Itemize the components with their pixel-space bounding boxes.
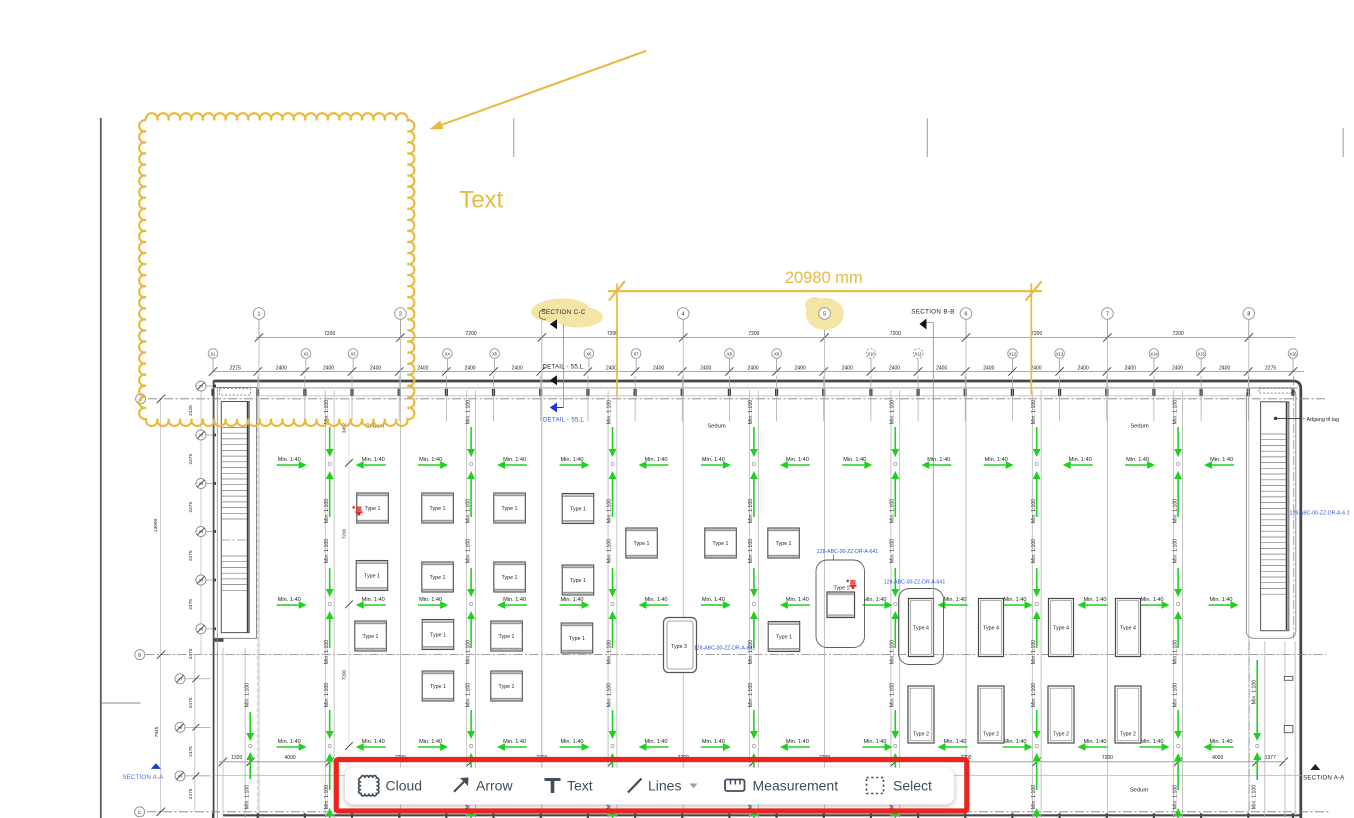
svg-text:2: 2 <box>399 312 402 318</box>
svg-text:Min. 1:40: Min. 1:40 <box>786 739 809 745</box>
svg-text:Min. 1:40: Min. 1:40 <box>863 597 886 603</box>
svg-text:Min. 1:40: Min. 1:40 <box>943 739 966 745</box>
svg-text:7200: 7200 <box>1031 331 1042 337</box>
svg-text:2400: 2400 <box>1078 365 1089 371</box>
svg-text:Min. 1:40: Min. 1:40 <box>278 739 301 745</box>
svg-text:Min. 1:40: Min. 1:40 <box>786 457 809 463</box>
svg-text:2275: 2275 <box>1265 365 1276 371</box>
svg-text:Min. 1:100: Min. 1:100 <box>465 683 471 707</box>
svg-text:Min. 1:40: Min. 1:40 <box>560 597 583 603</box>
svg-text:SECTION A-A: SECTION A-A <box>1303 774 1345 781</box>
svg-text:2400: 2400 <box>653 365 664 371</box>
svg-text:Min. 1:100: Min. 1:100 <box>1172 539 1178 563</box>
svg-text:Type 1: Type 1 <box>499 684 515 690</box>
svg-text:2400: 2400 <box>1125 365 1136 371</box>
svg-text:Min. 1:40: Min. 1:40 <box>362 739 385 745</box>
svg-text:Min. 1:100: Min. 1:100 <box>607 400 613 424</box>
svg-text:Min. 1:40: Min. 1:40 <box>1210 457 1233 463</box>
svg-text:Min. 1:40: Min. 1:40 <box>927 457 950 463</box>
svg-text:SECTION C-C: SECTION C-C <box>541 309 585 316</box>
svg-text:Min. 1:40: Min. 1:40 <box>1003 597 1026 603</box>
svg-text:Min. 1:100: Min. 1:100 <box>607 640 613 664</box>
svg-text:Type 2: Type 2 <box>913 732 929 738</box>
svg-text:2475: 2475 <box>188 550 194 561</box>
svg-text:Measurement: Measurement <box>753 777 839 793</box>
svg-text:Sedum: Sedum <box>707 424 726 430</box>
svg-text:X11: X11 <box>915 351 923 356</box>
svg-text:X16: X16 <box>1289 351 1297 356</box>
svg-text:7: 7 <box>1106 312 1109 318</box>
svg-text:DETAIL - 55.L: DETAIL - 55.L <box>542 364 583 371</box>
svg-text:6: 6 <box>965 312 968 318</box>
svg-text:Min. 1:100: Min. 1:100 <box>1031 683 1037 707</box>
svg-text:2400: 2400 <box>417 365 428 371</box>
svg-text:Min. 1:100: Min. 1:100 <box>244 785 250 809</box>
svg-text:Min. 1:40: Min. 1:40 <box>702 739 725 745</box>
svg-text:DETAIL - 55.L: DETAIL - 55.L <box>543 417 584 424</box>
svg-text:Type 1: Type 1 <box>499 634 515 640</box>
svg-text:X3: X3 <box>351 351 357 356</box>
svg-text:8: 8 <box>1247 312 1250 318</box>
svg-text:7200: 7200 <box>324 331 335 337</box>
svg-text:Min. 1:40: Min. 1:40 <box>1126 457 1149 463</box>
svg-text:Min. 1:40: Min. 1:40 <box>985 457 1008 463</box>
svg-text:Sedum: Sedum <box>1130 788 1149 794</box>
svg-text:7200: 7200 <box>466 331 477 337</box>
svg-text:Min. 1:100: Min. 1:100 <box>324 539 330 563</box>
svg-text:Min. 1:100: Min. 1:100 <box>748 539 754 563</box>
svg-text:Type 4: Type 4 <box>983 626 999 632</box>
svg-text:X4: X4 <box>445 351 451 356</box>
svg-text:Text: Text <box>459 187 503 214</box>
svg-text:Min. 1:40: Min. 1:40 <box>278 597 301 603</box>
svg-text:Type 1: Type 1 <box>834 586 850 592</box>
svg-text:4000: 4000 <box>285 755 296 761</box>
svg-text:Min. 1:100: Min. 1:100 <box>465 400 471 424</box>
svg-text:2400: 2400 <box>512 365 523 371</box>
svg-text:2400: 2400 <box>889 365 900 371</box>
svg-text:Min. 1:100: Min. 1:100 <box>1172 640 1178 664</box>
svg-text:2475: 2475 <box>188 502 194 513</box>
svg-text:Min. 1:100: Min. 1:100 <box>1031 499 1037 523</box>
svg-text:Min. 1:100: Min. 1:100 <box>1031 539 1037 563</box>
svg-text:X8: X8 <box>727 351 733 356</box>
svg-text:Type 4: Type 4 <box>913 626 929 632</box>
svg-text:Type 1: Type 1 <box>502 575 518 581</box>
svg-text:2275: 2275 <box>230 365 241 371</box>
svg-text:Type 1: Type 1 <box>570 507 586 513</box>
svg-text:2400: 2400 <box>842 365 853 371</box>
svg-text:Min. 1:40: Min. 1:40 <box>362 597 385 603</box>
svg-text:2400: 2400 <box>700 365 711 371</box>
svg-text:20980 mm: 20980 mm <box>785 269 863 287</box>
svg-text:Min. 1:100: Min. 1:100 <box>890 683 896 707</box>
svg-text:X7: X7 <box>634 351 640 356</box>
svg-text:Min. 1:100: Min. 1:100 <box>607 539 613 563</box>
svg-text:Type 2: Type 2 <box>1120 732 1136 738</box>
svg-text:Min. 1:40: Min. 1:40 <box>560 739 583 745</box>
svg-text:Min. 1:100: Min. 1:100 <box>607 499 613 523</box>
svg-text:7200: 7200 <box>890 331 901 337</box>
svg-text:2400: 2400 <box>323 365 334 371</box>
svg-text:Min. 1:40: Min. 1:40 <box>1209 597 1232 603</box>
svg-text:2400: 2400 <box>606 365 617 371</box>
svg-text:Type 4: Type 4 <box>1053 626 1069 632</box>
svg-text:Type 1: Type 1 <box>364 574 380 580</box>
svg-text:2475: 2475 <box>188 648 194 659</box>
svg-text:X2: X2 <box>303 351 309 356</box>
svg-text:Min. 1:40: Min. 1:40 <box>943 597 966 603</box>
svg-text:2400: 2400 <box>795 365 806 371</box>
svg-text:Min. 1:100: Min. 1:100 <box>890 499 896 523</box>
svg-text:Arrow: Arrow <box>476 777 513 793</box>
svg-text:2400: 2400 <box>747 365 758 371</box>
svg-text:SECTION A-A: SECTION A-A <box>122 774 164 781</box>
svg-text:Min. 1:100: Min. 1:100 <box>324 785 330 809</box>
svg-text:Type 1: Type 1 <box>502 506 518 512</box>
svg-text:Min. 1:100: Min. 1:100 <box>465 640 471 664</box>
svg-text:Type 2: Type 2 <box>1053 732 1069 738</box>
svg-text:Type 1: Type 1 <box>713 541 729 547</box>
svg-text:7945: 7945 <box>154 726 160 737</box>
svg-text:2400: 2400 <box>464 365 475 371</box>
svg-text:B: B <box>138 653 141 658</box>
svg-text:7200: 7200 <box>1173 331 1184 337</box>
svg-text:Min. 1:40: Min. 1:40 <box>786 597 809 603</box>
svg-text:Type 1: Type 1 <box>430 575 446 581</box>
svg-text:Min. 1:100: Min. 1:100 <box>748 683 754 707</box>
svg-text:Min. 1:100: Min. 1:100 <box>1031 640 1037 664</box>
svg-text:Min. 1:40: Min. 1:40 <box>644 739 667 745</box>
svg-text:Min. 1:40: Min. 1:40 <box>503 457 526 463</box>
svg-text:Cloud: Cloud <box>386 777 423 793</box>
svg-text:Min. 1:40: Min. 1:40 <box>419 597 442 603</box>
svg-text:2400: 2400 <box>370 365 381 371</box>
svg-text:X5: X5 <box>492 351 498 356</box>
svg-text:Min. 1:40: Min. 1:40 <box>863 739 886 745</box>
svg-text:Min. 1:100: Min. 1:100 <box>465 539 471 563</box>
svg-text:Min. 1:40: Min. 1:40 <box>362 457 385 463</box>
svg-text:5: 5 <box>823 312 826 318</box>
svg-text:Min. 1:40: Min. 1:40 <box>1140 597 1163 603</box>
svg-text:Min. 1:100: Min. 1:100 <box>1031 400 1037 424</box>
svg-text:Min. 1:40: Min. 1:40 <box>702 597 725 603</box>
svg-text:Type 1: Type 1 <box>365 506 381 512</box>
svg-text:X15: X15 <box>1197 351 1205 356</box>
svg-text:Min. 1:40: Min. 1:40 <box>843 457 866 463</box>
svg-text:Min. 1:100: Min. 1:100 <box>324 683 330 707</box>
svg-text:Min. 1:100: Min. 1:100 <box>1031 785 1037 809</box>
svg-text:2400: 2400 <box>983 365 994 371</box>
svg-text:Min. 1:40: Min. 1:40 <box>278 457 301 463</box>
svg-text:Min. 1:100: Min. 1:100 <box>748 640 754 664</box>
svg-text:Min. 1:100: Min. 1:100 <box>1251 785 1257 809</box>
svg-text:SECTION B-B: SECTION B-B <box>911 309 954 316</box>
svg-text:Min. 1:100: Min. 1:100 <box>1172 499 1178 523</box>
svg-text:7200: 7200 <box>748 331 759 337</box>
svg-text:Min. 1:40: Min. 1:40 <box>1140 739 1163 745</box>
svg-text:1320: 1320 <box>231 755 242 761</box>
svg-text:Min. 1:100: Min. 1:100 <box>465 499 471 523</box>
svg-text:2475: 2475 <box>188 746 194 757</box>
svg-text:1: 1 <box>258 312 261 318</box>
svg-text:Min. 1:40: Min. 1:40 <box>1209 739 1232 745</box>
svg-text:128-ABC-00-ZZ-DR-A-641: 128-ABC-00-ZZ-DR-A-641 <box>817 549 879 555</box>
svg-text:Type 1: Type 1 <box>430 684 446 690</box>
svg-text:Type 1: Type 1 <box>776 635 792 641</box>
svg-text:Min. 1:40: Min. 1:40 <box>503 597 526 603</box>
svg-text:Text: Text <box>567 777 593 793</box>
svg-text:2475: 2475 <box>188 697 194 708</box>
svg-text:Min. 1:40: Min. 1:40 <box>1003 739 1026 745</box>
svg-text:7200: 7200 <box>342 669 347 680</box>
svg-text:Adgang til tag: Adgang til tag <box>1307 417 1339 423</box>
svg-text:Type 1: Type 1 <box>776 541 792 547</box>
svg-text:Type 1: Type 1 <box>430 506 446 512</box>
svg-text:Min. 1:40: Min. 1:40 <box>1083 597 1106 603</box>
svg-text:2475: 2475 <box>188 599 194 610</box>
svg-text:2400: 2400 <box>1172 365 1183 371</box>
svg-text:X10: X10 <box>867 351 875 356</box>
svg-text:Min. 1:100: Min. 1:100 <box>1172 400 1178 424</box>
svg-text:Min. 1:40: Min. 1:40 <box>503 739 526 745</box>
svg-text:2475: 2475 <box>188 454 194 465</box>
svg-text:13000: 13000 <box>153 518 159 532</box>
svg-text:X13: X13 <box>1056 351 1064 356</box>
svg-text:X6: X6 <box>586 351 592 356</box>
svg-text:Select: Select <box>893 777 932 793</box>
svg-text:Type 1: Type 1 <box>430 633 446 639</box>
svg-text:Min. 1:40: Min. 1:40 <box>1069 457 1092 463</box>
svg-text:Min. 1:40: Min. 1:40 <box>1083 739 1106 745</box>
svg-text:Min. 1:100: Min. 1:100 <box>890 539 896 563</box>
svg-text:Type 3: Type 3 <box>671 644 687 650</box>
svg-text:Min. 1:100: Min. 1:100 <box>748 400 754 424</box>
svg-text:128-ABC-00-ZZ-DR-A-641: 128-ABC-00-ZZ-DR-A-641 <box>884 580 946 586</box>
svg-text:7200: 7200 <box>342 528 347 539</box>
svg-text:Type 4: Type 4 <box>1120 626 1136 632</box>
svg-text:7200: 7200 <box>1102 755 1113 761</box>
svg-text:2400: 2400 <box>1219 365 1230 371</box>
svg-text:Min. 1:100: Min. 1:100 <box>890 400 896 424</box>
svg-text:Type 1: Type 1 <box>569 636 585 642</box>
svg-text:4000: 4000 <box>1212 755 1223 761</box>
svg-text:Type 2: Type 2 <box>983 732 999 738</box>
svg-text:Type 1: Type 1 <box>570 578 586 584</box>
svg-text:128-ABC-00-ZZ-DR-A-6 2: 128-ABC-00-ZZ-DR-A-6 2 <box>1290 511 1350 517</box>
svg-text:2400: 2400 <box>276 365 287 371</box>
svg-text:Min. 1:40: Min. 1:40 <box>702 457 725 463</box>
svg-text:Min. 1:100: Min. 1:100 <box>890 640 896 664</box>
svg-text:Min. 1:40: Min. 1:40 <box>419 739 442 745</box>
svg-text:X12: X12 <box>1009 351 1017 356</box>
svg-text:Min. 1:40: Min. 1:40 <box>419 457 442 463</box>
svg-text:Min. 1:40: Min. 1:40 <box>644 457 667 463</box>
svg-text:X14: X14 <box>1150 351 1158 356</box>
svg-text:Min. 1:100: Min. 1:100 <box>748 499 754 523</box>
svg-text:128-ABC-00-ZZ-DR-A-641: 128-ABC-00-ZZ-DR-A-641 <box>694 646 756 652</box>
svg-text:Lines: Lines <box>648 777 681 793</box>
svg-text:Type 1: Type 1 <box>363 634 379 640</box>
svg-text:X1: X1 <box>210 351 216 356</box>
svg-text:Min. 1:40: Min. 1:40 <box>560 457 583 463</box>
svg-text:2400: 2400 <box>936 365 947 371</box>
svg-text:Min. 1:100: Min. 1:100 <box>1172 683 1178 707</box>
svg-text:Min. 1:100: Min. 1:100 <box>324 640 330 664</box>
svg-text:1377: 1377 <box>1265 755 1276 761</box>
svg-text:2475: 2475 <box>188 788 194 799</box>
svg-text:Min. 1:100: Min. 1:100 <box>1172 785 1178 809</box>
svg-text:Min. 1:100: Min. 1:100 <box>607 683 613 707</box>
svg-text:Type 1: Type 1 <box>634 541 650 547</box>
svg-text:Min. 1:40: Min. 1:40 <box>644 597 667 603</box>
svg-text:2425: 2425 <box>188 405 194 416</box>
svg-text:Min. 1:100: Min. 1:100 <box>244 683 250 707</box>
svg-text:Sedum: Sedum <box>1130 424 1149 430</box>
svg-text:4: 4 <box>682 312 685 318</box>
svg-text:Min. 1:100: Min. 1:100 <box>324 499 330 523</box>
svg-text:X9: X9 <box>774 351 780 356</box>
